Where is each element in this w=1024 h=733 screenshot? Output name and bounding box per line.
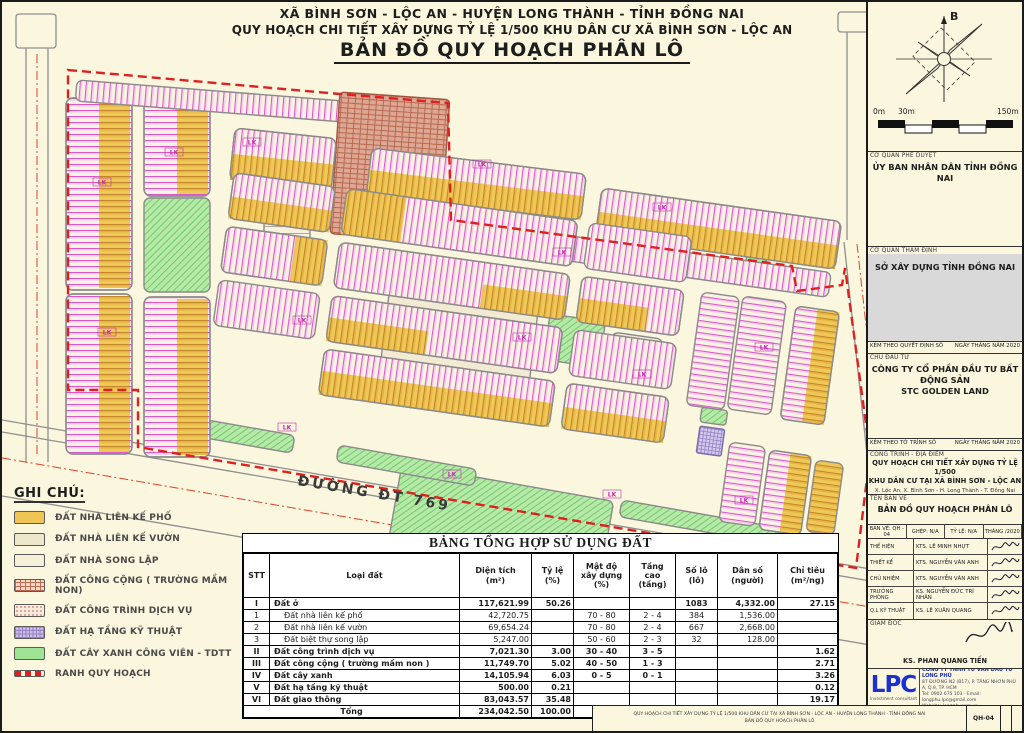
drawing-meta-cell: THÁNG /2020 <box>984 525 1023 538</box>
company-name: CÔNG TY TNHH TƯ VẤN ĐẦU TƯ LONG PHÚ <box>922 669 1020 680</box>
table-cell: 1 - 3 <box>630 658 676 670</box>
title-line-1: XÃ BÌNH SƠN - LỘC AN - HUYỆN LONG THÀNH … <box>152 6 872 21</box>
signature-icon <box>988 587 1022 602</box>
table-header-row: STTLoại đấtDiện tích (m²)Tỷ lệ (%)Mật độ… <box>244 554 838 598</box>
legend-item: ĐẤT CÔNG TRÌNH DỊCH VỤ <box>14 604 244 617</box>
table-cell <box>718 670 778 682</box>
company-logo: LPC Investment consultant <box>868 669 920 708</box>
table-cell: 14,105.94 <box>460 670 532 682</box>
svg-text:LK: LK <box>608 492 617 499</box>
legend-item: ĐẤT NHÀ SONG LẬP <box>14 554 244 567</box>
landuse-table-wrap: BẢNG TỔNG HỢP SỬ DỤNG ĐẤT STTLoại đấtDiệ… <box>242 533 839 719</box>
svg-text:LK: LK <box>103 330 112 337</box>
table-cell <box>778 622 838 634</box>
table-row: IVĐất cây xanh14,105.946.030 - 50 - 13.2… <box>244 670 838 682</box>
table-row: IĐất ở117,621.9950.2610834,332.0027.15 <box>244 598 838 610</box>
map-title: XÃ BÌNH SƠN - LỘC AN - HUYỆN LONG THÀNH … <box>152 6 872 64</box>
signer-row: THỂ HIỆNKTS. LÊ MINH NHỰT <box>868 539 1022 555</box>
column-header: Mật độ xây dựng (%) <box>574 554 630 598</box>
table-cell: Tổng <box>244 706 460 718</box>
legend: GHI CHÚ: ĐẤT NHÀ LIÊN KẾ PHỐĐẤT NHÀ LIÊN… <box>14 482 244 687</box>
table-cell: Đất công cộng ( trường mầm non ) <box>270 658 460 670</box>
company-box: LPC Investment consultant CÔNG TY TNHH T… <box>868 669 1022 709</box>
plan-sheet: LKLK LKLK LKLK LKLK LKLK LKLK LKLK LK ĐƯ… <box>0 0 1024 733</box>
table-cell <box>718 658 778 670</box>
signer-role: Q.L KỸ THUẬT <box>868 603 914 619</box>
table-cell <box>630 694 676 706</box>
table-cell: 2 - 4 <box>630 610 676 622</box>
svg-text:LK: LK <box>478 162 487 169</box>
lpc-logo-sub: Investment consultant <box>870 696 917 701</box>
table-cell: 32 <box>676 634 718 646</box>
table-cell <box>676 694 718 706</box>
signer-name: KTS. LÊ MINH NHỰT <box>914 539 988 554</box>
drawing-box: TÊN BẢN VẼ BẢN ĐỒ QUY HOẠCH PHÂN LÔ <box>868 495 1022 525</box>
table-cell: 3.26 <box>778 670 838 682</box>
signer-name: KS. NGUYỄN ĐỨC TRÍ NHÂN <box>914 587 988 602</box>
table-cell: 3.00 <box>532 646 574 658</box>
legend-item: ĐẤT HẠ TẦNG KỸ THUẬT <box>14 626 244 639</box>
table-row: VIĐất giao thông83,043.5735.4819.17 <box>244 694 838 706</box>
cream-swatch-icon <box>14 533 45 546</box>
north-arrow-icon <box>941 16 947 24</box>
table-cell: 2 <box>244 622 270 634</box>
table-cell <box>532 622 574 634</box>
table-cell <box>574 598 630 610</box>
legend-item: RANH QUY HOẠCH <box>14 669 244 679</box>
signers-box: THỂ HIỆNKTS. LÊ MINH NHỰTTHIẾT KẾKTS. NG… <box>868 539 1022 619</box>
table-cell: 6.03 <box>532 670 574 682</box>
legend-heading: GHI CHÚ: <box>14 486 85 503</box>
table-cell: 3 <box>244 634 270 646</box>
table-cell: 69,654.24 <box>460 622 532 634</box>
table-row: VĐất hạ tầng kỹ thuật500.000.210.12 <box>244 682 838 694</box>
scale-tick-150: 150m <box>997 107 1019 116</box>
footer-drawing-code: QH-04 <box>966 706 1000 731</box>
signer-name: KTS. NGUYỄN VĂN ANH <box>914 555 988 570</box>
legend-items: ĐẤT NHÀ LIÊN KẾ PHỐĐẤT NHÀ LIÊN KẾ VƯỜNĐ… <box>14 511 244 679</box>
compass-and-scale: B 0m 30m 150m <box>868 2 1021 150</box>
table-cell <box>676 670 718 682</box>
table-cell: 1.62 <box>778 646 838 658</box>
table-row: 2Đất nhà liên kế vườn69,654.2470 - 802 -… <box>244 622 838 634</box>
table-cell <box>676 658 718 670</box>
legend-item-label: ĐẤT NHÀ LIÊN KẾ PHỐ <box>55 513 172 523</box>
table-cell: 0.21 <box>532 682 574 694</box>
table-cell: V <box>244 682 270 694</box>
table-cell: 70 - 80 <box>574 610 630 622</box>
title-block-sidebar: B 0m 30m 150m CƠ QUAN PHÊ DUYỆT ỦY BAN N… <box>866 2 1022 733</box>
svg-text:LK: LK <box>298 318 307 325</box>
table-cell: 2.71 <box>778 658 838 670</box>
investor-box: CHỦ ĐẦU TƯ CÔNG TY CỔ PHẦN ĐẦU TƯ BẤT ĐỘ… <box>868 354 1022 439</box>
scale-tick-0: 0m <box>873 107 885 116</box>
table-cell <box>718 682 778 694</box>
table-cell: 11,749.70 <box>460 658 532 670</box>
signer-row: CHỦ NHIỆMKTS. NGUYỄN VĂN ANH <box>868 571 1022 587</box>
approval-box: CƠ QUAN PHÊ DUYỆT ỦY BAN NHÂN DÂN TỈNH Đ… <box>868 152 1022 247</box>
svg-text:LK: LK <box>638 372 647 379</box>
signer-name: KS. LÊ XUÂN QUANG <box>914 603 988 619</box>
table-cell: 70 - 80 <box>574 622 630 634</box>
svg-text:LK: LK <box>170 150 179 157</box>
table-cell <box>778 634 838 646</box>
table-cell: 384 <box>676 610 718 622</box>
report-row: KÈM THEO TỜ TRÌNH SỐ NGÀY THÁNG NĂM 2020 <box>868 439 1022 451</box>
table-cell: Đất giao thông <box>270 694 460 706</box>
table-cell: 1 <box>244 610 270 622</box>
boundary-swatch-icon <box>14 670 45 677</box>
table-cell: 234,042.50 <box>460 706 532 718</box>
signature-icon <box>988 539 1022 554</box>
table-cell: 3 - 5 <box>630 646 676 658</box>
signer-role: TRƯỞNG PHÒNG <box>868 587 914 602</box>
table-cell: 50.26 <box>532 598 574 610</box>
legend-item: ĐẤT CÂY XANH CÔNG VIÊN - TDTT <box>14 647 244 660</box>
footer-strip: QUY HOẠCH CHI TIẾT XÂY DỰNG TỶ LỆ 1/500 … <box>592 705 1022 731</box>
legend-item-label: ĐẤT NHÀ SONG LẬP <box>55 556 159 566</box>
legend-item-label: ĐẤT CÂY XANH CÔNG VIÊN - TDTT <box>55 649 231 659</box>
table-cell: 50 - 60 <box>574 634 630 646</box>
table-row: 3Đất biệt thự song lập5,247.0050 - 602 -… <box>244 634 838 646</box>
table-cell: 128.00 <box>718 634 778 646</box>
table-cell: 27.15 <box>778 598 838 610</box>
svg-text:LK: LK <box>448 472 457 479</box>
table-cell: 2,668.00 <box>718 622 778 634</box>
table-cell <box>532 634 574 646</box>
yellow-swatch-icon <box>14 511 45 524</box>
table-cell: 667 <box>676 622 718 634</box>
table-cell: 2 - 3 <box>630 634 676 646</box>
legend-item-label: ĐẤT HẠ TẦNG KỸ THUẬT <box>55 627 182 637</box>
table-cell <box>676 682 718 694</box>
project-location: X. Lộc An, X. Bình Sơn - H. Long Thành -… <box>868 488 1022 494</box>
table-cell <box>532 610 574 622</box>
signer-role: THỂ HIỆN <box>868 539 914 554</box>
table-cell: VI <box>244 694 270 706</box>
purple-swatch-icon <box>14 626 45 639</box>
table-cell: 5,247.00 <box>460 634 532 646</box>
table-cell: II <box>244 646 270 658</box>
review-box: CƠ QUAN THẨM ĐỊNH SỞ XÂY DỰNG TỈNH ĐỒNG … <box>868 247 1022 342</box>
drawing-meta-cell: TỶ LỆ: N/A <box>945 525 984 538</box>
signer-name: KTS. NGUYỄN VĂN ANH <box>914 571 988 586</box>
landuse-table: BẢNG TỔNG HỢP SỬ DỤNG ĐẤT STTLoại đấtDiệ… <box>243 534 838 718</box>
footer-cell <box>1011 706 1022 731</box>
table-cell: 1083 <box>676 598 718 610</box>
table-cell: 117,621.99 <box>460 598 532 610</box>
table-cell: 1,536.00 <box>718 610 778 622</box>
report-date: NGÀY THÁNG NĂM 2020 <box>955 440 1020 446</box>
signature-icon <box>988 555 1022 570</box>
table-cell <box>630 682 676 694</box>
footer-cell <box>1000 706 1011 731</box>
table-cell: 0 - 5 <box>574 670 630 682</box>
table-cell <box>630 598 676 610</box>
green-swatch-icon <box>14 647 45 660</box>
table-cell: I <box>244 598 270 610</box>
drawing-meta-cell: BẢN VẼ: QH - 04 <box>868 525 907 538</box>
table-cell: 40 - 50 <box>574 658 630 670</box>
signer-row: TRƯỞNG PHÒNGKS. NGUYỄN ĐỨC TRÍ NHÂN <box>868 587 1022 603</box>
approval-value: ỦY BAN NHÂN DÂN TỈNH ĐỒNG NAI <box>868 162 1022 184</box>
table-title: BẢNG TỔNG HỢP SỬ DỤNG ĐẤT <box>243 534 838 553</box>
north-label: B <box>950 10 958 23</box>
meta-box: BẢN VẼ: QH - 04GHÉP: N/ATỶ LỆ: N/ATHÁNG … <box>868 525 1022 539</box>
svg-text:LK: LK <box>518 335 527 342</box>
column-header: Chỉ tiêu (m²/ng) <box>778 554 838 598</box>
scale-tick-30: 30m <box>898 107 915 116</box>
svg-text:LK: LK <box>558 250 567 257</box>
column-header: Tỷ lệ (%) <box>532 554 574 598</box>
legend-item-label: RANH QUY HOẠCH <box>55 669 151 679</box>
table-cell: 2 - 4 <box>630 622 676 634</box>
report-line: KÈM THEO TỜ TRÌNH SỐ <box>870 440 936 446</box>
project-box: CÔNG TRÌNH - ĐỊA ĐIỂM QUY HOẠCH CHI TIẾT… <box>868 451 1022 495</box>
column-header: Dân số (người) <box>718 554 778 598</box>
table-cell: 7,021.30 <box>460 646 532 658</box>
title-line-2: QUY HOẠCH CHI TIẾT XÂY DỰNG TỶ LỆ 1/500 … <box>152 23 872 37</box>
table-cell: 83,043.57 <box>460 694 532 706</box>
decision-date: NGÀY THÁNG NĂM 2020 <box>955 343 1020 349</box>
table-cell <box>574 682 630 694</box>
table-row: IIIĐất công cộng ( trường mầm non )11,74… <box>244 658 838 670</box>
table-cell <box>574 694 630 706</box>
investor-label: CHỦ ĐẦU TƯ <box>868 354 1022 361</box>
table-cell: Đất biệt thự song lập <box>270 634 460 646</box>
table-cell: Đất nhà liên kế phố <box>270 610 460 622</box>
road-endcap-topleft <box>16 14 56 48</box>
column-header: Diện tích (m²) <box>460 554 532 598</box>
decision-line: KÈM THEO QUYẾT ĐỊNH SỐ <box>870 343 943 349</box>
company-contact: Tel: 0902 675 103 - Email: longphu.lpc@g… <box>922 692 1020 704</box>
approval-label: CƠ QUAN PHÊ DUYỆT <box>868 152 1022 159</box>
table-cell: III <box>244 658 270 670</box>
svg-text:LK: LK <box>98 180 107 187</box>
review-label: CƠ QUAN THẨM ĐỊNH <box>868 247 1022 254</box>
review-value: SỞ XÂY DỰNG TỈNH ĐỒNG NAI <box>868 262 1022 273</box>
table-cell <box>718 694 778 706</box>
drawing-label: TÊN BẢN VẼ <box>868 495 1022 502</box>
svg-text:LK: LK <box>740 498 749 505</box>
table-cell: 0 - 1 <box>630 670 676 682</box>
legend-item: ĐẤT CÔNG CỘNG ( TRƯỜNG MẦM NON) <box>14 576 244 596</box>
table-cell: 4,332.00 <box>718 598 778 610</box>
table-cell <box>778 610 838 622</box>
table-cell: 0.12 <box>778 682 838 694</box>
dots-swatch-icon <box>14 604 45 617</box>
column-header: Tầng cao (tầng) <box>630 554 676 598</box>
table-cell: 19.17 <box>778 694 838 706</box>
column-header: Loại đất <box>270 554 460 598</box>
table-cell: IV <box>244 670 270 682</box>
table-row: 1Đất nhà liên kế phố42,720.7570 - 802 - … <box>244 610 838 622</box>
pale-swatch-icon <box>14 554 45 567</box>
table-row: IIĐất công trình dịch vụ7,021.303.0030 -… <box>244 646 838 658</box>
director-box: GIÁM ĐỐC KS. PHAN QUANG TIẾN <box>868 619 1022 669</box>
lpc-logo-text: LPC <box>871 676 916 696</box>
project-label: CÔNG TRÌNH - ĐỊA ĐIỂM <box>868 451 1022 458</box>
footer-line-2: BẢN ĐỒ QUY HOẠCH PHÂN LÔ <box>745 719 815 726</box>
svg-text:LK: LK <box>658 205 667 212</box>
brick-swatch-icon <box>14 579 45 592</box>
company-address: 87 ĐƯỜNG N2 (B17), P. TĂNG NHƠN PHÚ A, Q… <box>922 680 1020 692</box>
legend-item: ĐẤT NHÀ LIÊN KẾ VƯỜN <box>14 533 244 546</box>
legend-item-label: ĐẤT CÔNG TRÌNH DỊCH VỤ <box>55 606 192 616</box>
legend-item-label: ĐẤT NHÀ LIÊN KẾ VƯỜN <box>55 534 180 544</box>
table-cell: 30 - 40 <box>574 646 630 658</box>
director-signature <box>962 622 1014 648</box>
svg-text:LK: LK <box>248 140 257 147</box>
director-name: KS. PHAN QUANG TIẾN <box>868 657 1022 665</box>
block-infrastructure <box>696 426 725 456</box>
compass-scale-box: B 0m 30m 150m <box>868 2 1022 152</box>
legend-item-label: ĐẤT CÔNG CỘNG ( TRƯỜNG MẦM NON) <box>55 576 244 596</box>
table-cell: Đất cây xanh <box>270 670 460 682</box>
investor-value: CÔNG TY CỔ PHẦN ĐẦU TƯ BẤT ĐỘNG SẢN STC … <box>868 364 1022 398</box>
drawing-name: BẢN ĐỒ QUY HOẠCH PHÂN LÔ <box>868 505 1022 516</box>
project-name: QUY HOẠCH CHI TIẾT XÂY DỰNG TỶ LỆ 1/500 … <box>868 459 1022 487</box>
signature-icon <box>988 571 1022 586</box>
column-header: Số lô (lô) <box>676 554 718 598</box>
table-cell <box>718 646 778 658</box>
signer-row: THIẾT KẾKTS. NGUYỄN VĂN ANH <box>868 555 1022 571</box>
table-cell: Đất công trình dịch vụ <box>270 646 460 658</box>
signature-icon <box>988 603 1022 619</box>
table-cell: Đất nhà liên kế vườn <box>270 622 460 634</box>
column-header: STT <box>244 554 270 598</box>
table-cell: 5.02 <box>532 658 574 670</box>
signer-role: CHỦ NHIỆM <box>868 571 914 586</box>
legend-item: ĐẤT NHÀ LIÊN KẾ PHỐ <box>14 511 244 524</box>
svg-text:LK: LK <box>760 345 769 352</box>
table-cell: 35.48 <box>532 694 574 706</box>
footer-line-1: QUY HOẠCH CHI TIẾT XÂY DỰNG TỶ LỆ 1/500 … <box>634 712 926 719</box>
decision-row: KÈM THEO QUYẾT ĐỊNH SỐ NGÀY THÁNG NĂM 20… <box>868 342 1022 354</box>
title-line-3: BẢN ĐỒ QUY HOẠCH PHÂN LÔ <box>334 39 690 64</box>
drawing-meta-cell: GHÉP: N/A <box>907 525 946 538</box>
signer-row: Q.L KỸ THUẬTKS. LÊ XUÂN QUANG <box>868 603 1022 619</box>
table-cell: Đất hạ tầng kỹ thuật <box>270 682 460 694</box>
scale-bar: 0m 30m 150m <box>873 107 1019 133</box>
svg-text:LK: LK <box>283 425 292 432</box>
table-cell: 500.00 <box>460 682 532 694</box>
signer-role: THIẾT KẾ <box>868 555 914 570</box>
table-cell: 100.00 <box>532 706 574 718</box>
table-cell: Đất ở <box>270 598 460 610</box>
table-cell <box>676 646 718 658</box>
table-cell: 42,720.75 <box>460 610 532 622</box>
